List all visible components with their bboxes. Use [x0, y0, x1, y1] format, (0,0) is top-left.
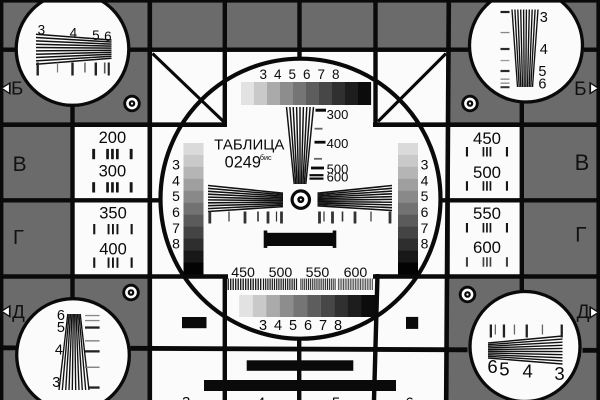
svg-text:В: В — [13, 153, 27, 176]
svg-text:350: 350 — [99, 204, 127, 222]
svg-text:5: 5 — [288, 67, 296, 82]
svg-text:4: 4 — [257, 394, 265, 400]
svg-text:5: 5 — [499, 359, 509, 380]
svg-text:200: 200 — [99, 129, 127, 147]
svg-text:300: 300 — [327, 107, 349, 122]
svg-text:6: 6 — [421, 204, 429, 220]
svg-text:3: 3 — [540, 10, 548, 26]
svg-text:6: 6 — [538, 76, 546, 92]
svg-text:4: 4 — [274, 67, 282, 82]
svg-text:8: 8 — [421, 236, 429, 252]
svg-text:3: 3 — [421, 157, 429, 173]
svg-text:8: 8 — [334, 318, 342, 334]
svg-text:400: 400 — [327, 136, 349, 151]
svg-text:Б: Б — [574, 79, 586, 100]
svg-text:6: 6 — [172, 204, 180, 220]
svg-text:4: 4 — [421, 172, 429, 188]
svg-text:4: 4 — [274, 318, 282, 334]
svg-text:4: 4 — [55, 342, 63, 358]
svg-text:5: 5 — [289, 318, 297, 334]
svg-text:3: 3 — [259, 318, 267, 334]
svg-text:7: 7 — [172, 220, 180, 236]
svg-text:600: 600 — [327, 170, 349, 185]
svg-text:7: 7 — [319, 318, 327, 334]
svg-text:6: 6 — [303, 67, 311, 82]
svg-text:6: 6 — [104, 29, 112, 44]
svg-text:600: 600 — [473, 238, 501, 257]
svg-text:4: 4 — [540, 42, 548, 58]
svg-text:4: 4 — [172, 172, 180, 188]
svg-text:5: 5 — [92, 28, 100, 43]
svg-text:ТАБЛИЦА: ТАБЛИЦА — [214, 137, 284, 154]
svg-text:0249: 0249 — [225, 153, 261, 171]
svg-text:Д: Д — [577, 302, 590, 323]
svg-text:3: 3 — [554, 363, 564, 384]
svg-text:6: 6 — [405, 395, 413, 400]
svg-text:3: 3 — [38, 22, 46, 37]
svg-text:5: 5 — [172, 188, 180, 204]
svg-text:400: 400 — [99, 240, 127, 258]
svg-text:7: 7 — [421, 220, 429, 236]
svg-text:8: 8 — [172, 236, 180, 252]
svg-text:300: 300 — [99, 163, 127, 181]
svg-text:5: 5 — [57, 320, 65, 336]
svg-text:бис: бис — [260, 153, 272, 162]
svg-text:Г: Г — [13, 227, 24, 249]
svg-text:3: 3 — [172, 157, 180, 173]
svg-text:7: 7 — [317, 67, 325, 82]
svg-text:Б: Б — [11, 78, 23, 99]
svg-text:550: 550 — [473, 204, 501, 223]
svg-text:Г: Г — [575, 224, 586, 247]
svg-text:3: 3 — [52, 375, 60, 391]
svg-text:4: 4 — [522, 360, 532, 381]
svg-text:Д: Д — [12, 301, 25, 322]
svg-text:500: 500 — [473, 163, 501, 182]
svg-text:450: 450 — [473, 129, 501, 148]
svg-text:3: 3 — [259, 67, 267, 82]
svg-text:3: 3 — [182, 394, 190, 400]
svg-text:6: 6 — [304, 318, 312, 334]
svg-text:4: 4 — [70, 26, 78, 41]
svg-text:5: 5 — [332, 395, 340, 400]
svg-text:6: 6 — [487, 356, 497, 377]
svg-text:В: В — [575, 150, 590, 175]
svg-text:5: 5 — [421, 188, 429, 204]
svg-text:8: 8 — [332, 67, 340, 82]
